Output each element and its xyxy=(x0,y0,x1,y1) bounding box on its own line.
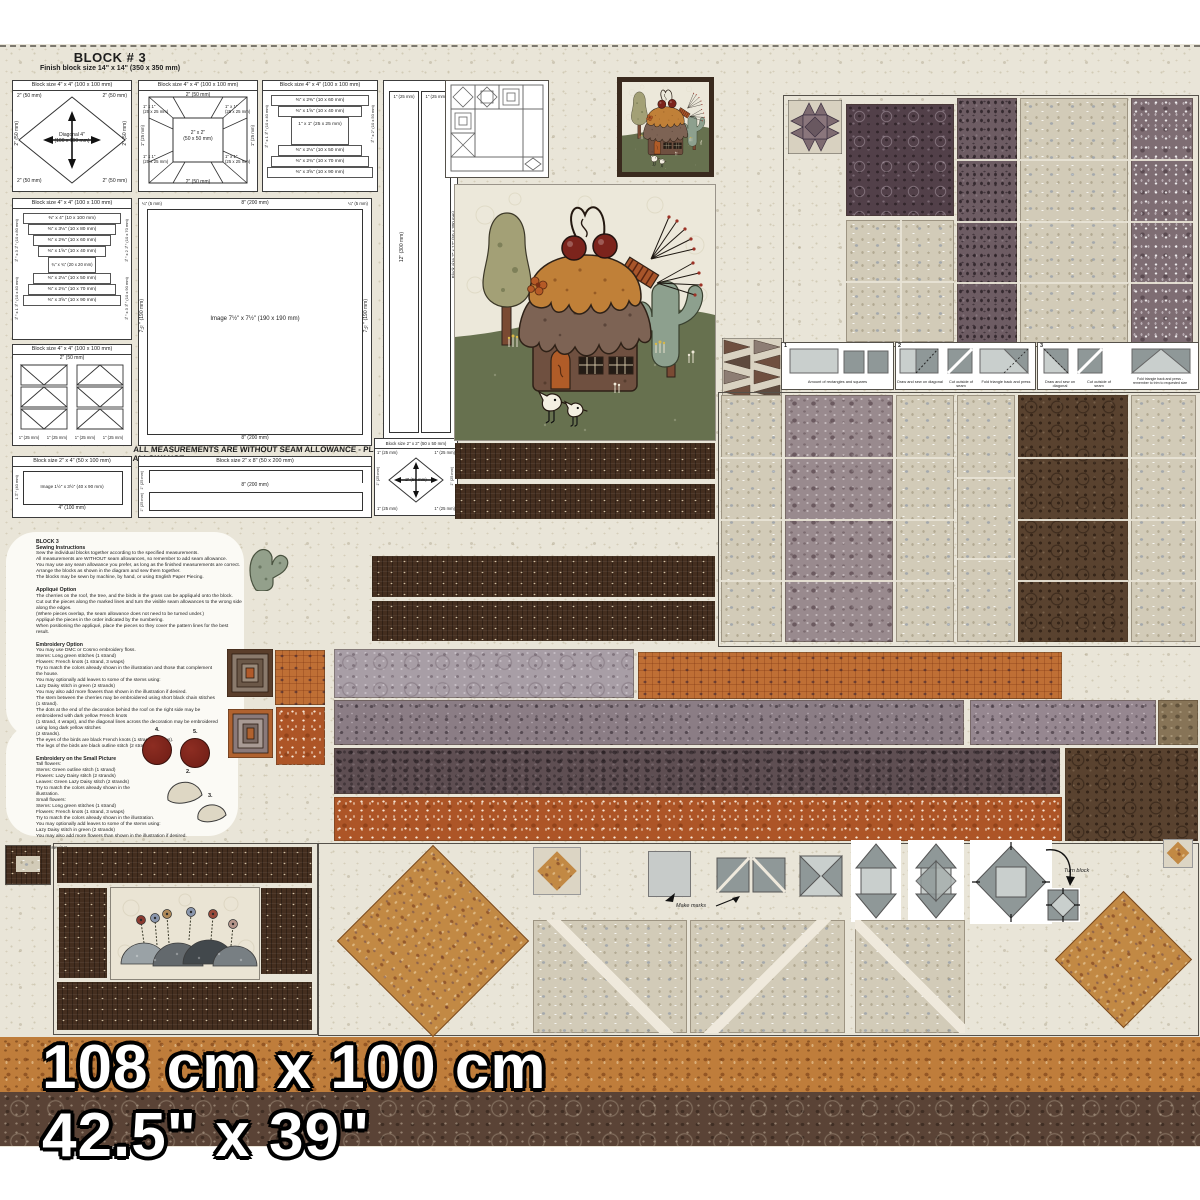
dim-label: 2" (50 mm) xyxy=(15,121,21,146)
fabric-square xyxy=(1065,748,1198,841)
fabric-divider xyxy=(1131,580,1196,582)
step-caption: Cut outside of seam xyxy=(1082,380,1116,389)
instruction-section: Appliqué Option The cherries on the roof… xyxy=(36,587,242,635)
fabric-strip xyxy=(334,797,1062,841)
diagonal-sashing xyxy=(690,920,845,1033)
frame-strip-right xyxy=(261,888,312,974)
bird-template-number: 2. xyxy=(186,769,191,775)
guide-square xyxy=(648,851,691,897)
fabric-column xyxy=(1131,395,1196,642)
dim-label: 4" (100 mm) xyxy=(13,506,131,512)
small-picture-flowers xyxy=(110,887,260,980)
fabric-divider xyxy=(957,282,1017,284)
fabric-column xyxy=(896,395,954,642)
fabric-column xyxy=(957,98,1017,343)
strip-label: ⅜" x 2⅜" (10 x 60 mm) xyxy=(33,235,111,246)
guide-triangle-pair xyxy=(715,856,787,896)
instruction-section: Embroidery Option You may use DMC or Cos… xyxy=(36,642,242,750)
flower-mounds-graphic xyxy=(111,888,259,979)
fabric-square xyxy=(846,104,954,216)
strip-label: ⅜" x 3⅝" (10 x 90 mm) xyxy=(267,167,373,178)
mark-arrow xyxy=(663,893,677,903)
strip-label: ⅜" x 1⅝" (10 x 40 mm) xyxy=(14,277,20,321)
dim-label: 1" x 1" (25 x 25 mm) xyxy=(143,155,173,165)
bird-body-template xyxy=(196,799,228,825)
fabric-divider xyxy=(1018,519,1128,521)
dim-label: ¼" (5 mm) xyxy=(348,201,368,207)
dim-label: 1" (25 mm) xyxy=(377,506,398,512)
fabric-column xyxy=(957,395,1015,642)
dim-label: 1" x 1" (25 x 25 mm) xyxy=(225,105,255,115)
house-picture-preview xyxy=(617,77,714,177)
diagram-center-image: ¼" (5 mm) 8" (200 mm) ¼" (5 mm) 7½" (190… xyxy=(138,198,372,446)
fabric-divider xyxy=(1020,221,1128,223)
strip-label: ⅜" x 3⅛" (10 x 80 mm) xyxy=(28,224,116,235)
image-size-label: Image 1½" x 3½" (40 x 90 mm) xyxy=(25,484,119,490)
step-number: 1 xyxy=(784,343,787,349)
diagonal-sashing xyxy=(855,920,965,1033)
fabric-divider xyxy=(896,457,954,459)
dim-label: 2" (50 mm) xyxy=(13,356,131,362)
log-cabin-mini-block xyxy=(228,709,273,758)
diagram-logcabin-block: Block size 4" x 4" (100 x 100 mm) ⅜" x 4… xyxy=(12,198,132,340)
fabric-square xyxy=(1158,700,1198,745)
fabric-column xyxy=(1018,395,1128,642)
dim-label: 1" (25 mm) xyxy=(15,435,43,441)
panel-subtitle: Finish block size 14" x 14" (350 x 350 m… xyxy=(0,65,220,72)
step1-graphic xyxy=(782,343,893,377)
geese-guide-step3: 3 Draw and sew on diagonal Cut outside o… xyxy=(1037,342,1199,390)
strip-label: ¾" x ¾" (20 x 20 mm) xyxy=(48,257,96,273)
diagram-header: Block size 2" x 8" (50 x 200 mm) xyxy=(139,457,371,467)
panel-size-inches: 42.5" x 39" xyxy=(42,1100,370,1171)
frame-strip-left xyxy=(59,888,107,978)
house-picture-main xyxy=(455,185,715,440)
fabric-panel-product-image: BLOCK # 3 Finish block size 14" x 14" (3… xyxy=(0,0,1200,1200)
flying-geese-graphic xyxy=(13,363,131,431)
fabric-divider xyxy=(721,457,782,459)
diagram-block-2x4: Block size 2" x 4" (50 x 100 mm) Image 1… xyxy=(12,456,132,518)
diagram-header: Block size 4" x 4" (100 x 100 mm) xyxy=(263,81,377,91)
cherry-template xyxy=(180,738,210,768)
fabric-divider xyxy=(785,519,893,521)
house-main-graphic xyxy=(455,185,715,440)
border-strip xyxy=(455,484,715,519)
step-number: 3 xyxy=(1040,343,1043,349)
strip-label: 1" x 1" (25 x 25 mm) xyxy=(291,117,349,145)
fabric-strip xyxy=(334,700,964,745)
fabric-divider xyxy=(1131,457,1196,459)
dim-label: 1" (25 mm) xyxy=(140,493,146,512)
dim-label: 1" x 1" (25 x 25 mm) xyxy=(143,105,173,115)
dim-label: 1" (25 mm) xyxy=(140,471,146,490)
diagram-hourglass-block: Block size 4" x 4" (100 x 100 mm) 2" (50… xyxy=(138,80,258,192)
fabric-strip xyxy=(334,748,1060,794)
diagonal-label: Diagonal 4" (100 x 100 mm) xyxy=(41,133,103,145)
cactus-applique xyxy=(238,533,300,591)
dim-label: 1" (25 mm) xyxy=(377,450,398,456)
step2-graphic xyxy=(896,343,1035,377)
dim-label: 1" (25 mm) xyxy=(43,435,71,441)
diamond-inner xyxy=(1167,842,1190,865)
square-in-square-step2 xyxy=(908,840,964,922)
fabric-divider xyxy=(957,558,1015,560)
dim-label: 2" (50 mm) xyxy=(390,477,442,483)
diamond-block-sample xyxy=(533,847,581,895)
fabric-column xyxy=(1131,98,1193,343)
diagram-block-2x8: Block size 2" x 8" (50 x 200 mm) 8" (200… xyxy=(138,456,372,518)
dim-label: 8" (200 mm) xyxy=(139,201,371,207)
fabric-square xyxy=(276,707,325,765)
dim-label: 2" (50 mm) xyxy=(17,94,42,100)
diagram-flying-geese-block: Block size 4" x 4" (100 x 100 mm) 2" (50… xyxy=(12,344,132,446)
dim-label: 12" (300 mm) xyxy=(400,232,406,262)
instruction-body: Sew the individual blocks together accor… xyxy=(36,551,242,581)
turn-block-label: Turn block xyxy=(1064,868,1108,874)
sashed-fabric-piece xyxy=(533,920,845,1033)
diagram-block-2x2: Block size 2" x 2" (50 x 50 mm) 1" (25 m… xyxy=(374,438,458,516)
dim-label: 2" x 2" (50 x 50 mm) xyxy=(169,131,227,143)
fabric-divider xyxy=(1020,282,1128,284)
dim-label: 1" (25 mm) xyxy=(434,506,455,512)
star-quilt-block xyxy=(788,100,842,154)
step-caption: Cut outside of seam xyxy=(944,380,978,389)
instruction-body: You may use DMC or Cosmo embroidery flos… xyxy=(36,648,242,750)
cherry-template xyxy=(142,735,172,765)
diamond-block-sample-small xyxy=(1163,839,1193,868)
fabric-divider xyxy=(1020,159,1128,161)
cherry-template-number: 5. xyxy=(193,729,198,735)
dim-label: 2" (50 mm) xyxy=(102,94,127,100)
frame-strip-top xyxy=(57,847,312,883)
dim-label: 1" x 1" (25 x 25 mm) xyxy=(225,155,255,165)
mini-framed-piece xyxy=(5,845,51,885)
strip-label: ⅜" x 2⅛" (10 x 50 mm) xyxy=(278,145,362,156)
step3-graphic xyxy=(1038,343,1198,377)
fabric-divider xyxy=(721,580,782,582)
diagram-header: Block size 4" x 4" (100 x 100 mm) xyxy=(13,345,131,355)
geese-guide-step2: 2 Draw and sew on diagonal Cut outside o… xyxy=(895,342,1036,390)
diagram-header: Block size 2" x 4" (50 x 100 mm) xyxy=(13,457,131,467)
strip-label: ⅜" x 4" (10 x 100 mm) xyxy=(23,213,121,224)
instruction-heading: BLOCK 3 Sewing Instructions xyxy=(36,539,242,551)
cherry-template-number: 4. xyxy=(155,727,160,733)
fabric-divider xyxy=(900,220,902,342)
strip-label: ⅜" x 2⅛" (10 x 50 mm) xyxy=(33,273,111,284)
fabric-divider xyxy=(957,159,1017,161)
fabric-strip xyxy=(970,700,1156,745)
step-caption: Draw and sew on diagonal xyxy=(1038,380,1082,389)
house-preview-graphic xyxy=(622,82,709,172)
strip-label: ⅜" x 2¾" (10 x 70 mm) xyxy=(271,156,369,167)
fabric-divider xyxy=(1131,159,1193,161)
dim-label: 7½" (190 mm) xyxy=(364,299,370,332)
dim-label: 1" (25 mm) xyxy=(390,94,418,100)
fabric-divider xyxy=(896,580,954,582)
fabric-divider xyxy=(785,457,893,459)
turn-arrow xyxy=(1042,846,1076,888)
strip-label: ⅜" x 3⅝" (10 x 90 mm) xyxy=(23,295,121,306)
step-caption: Fold triangle back and press - remember … xyxy=(1124,377,1196,385)
border-strip xyxy=(372,556,715,597)
dim-label: 1" (25 mm) xyxy=(140,125,146,146)
dim-label: 7½" (190 mm) xyxy=(140,299,146,332)
square-in-square-step1 xyxy=(851,840,901,922)
dim-label: 8" (200 mm) xyxy=(139,483,371,489)
step-number: 2 xyxy=(898,343,901,349)
fabric-divider xyxy=(896,519,954,521)
panel-title: BLOCK # 3 xyxy=(20,50,200,65)
strip-outline xyxy=(149,492,363,511)
border-strip xyxy=(455,443,715,479)
step-caption: Amount of rectangles and squares xyxy=(782,380,893,384)
fabric-divider xyxy=(957,477,1015,479)
sashed-square xyxy=(533,920,687,1033)
diagram-header: Block size 4" x 4" (100 x 100 mm) xyxy=(139,81,257,91)
strip-label: ⅜" x 2" (10 x 50 mm) xyxy=(370,105,376,144)
dim-label: 1" (25 mm) xyxy=(250,125,256,146)
diagram-header: Block size 2" x 2" (50 x 50 mm) xyxy=(375,439,457,449)
strip-label: ⅜" x 2¾" (10 x 70 mm) xyxy=(124,219,130,263)
diagram-diamond-block: Block size 4" x 4" (100 x 100 mm) 2" (50… xyxy=(12,80,132,192)
dim-label: 1" (25 mm) xyxy=(99,435,127,441)
strip-label: ⅜" x 2⅜" (10 x 60 mm) xyxy=(271,95,369,106)
turned-block-result xyxy=(1046,888,1080,922)
strip-label: ⅜" x 1⅝" (10 x 40 mm) xyxy=(38,246,106,257)
dim-label: 2" (50 mm) xyxy=(151,93,245,99)
strip-label: ⅜" x 1⅝" (10 x 40 mm) xyxy=(264,105,270,149)
strip-label: ⅜" x 3⅝" (10 x 90 mm) xyxy=(124,277,130,321)
dim-label: 1" (25 mm) xyxy=(71,435,99,441)
quilt-layout-diagram xyxy=(445,80,549,178)
flying-geese-sample-block xyxy=(722,338,782,400)
instruction-section: BLOCK 3 Sewing Instructions Sew the indi… xyxy=(36,539,242,581)
instruction-body: The cherries on the roof, the tree, and … xyxy=(36,594,242,636)
dim-label: 1" (25 mm) xyxy=(434,450,455,456)
fabric-divider xyxy=(721,519,782,521)
fabric-column xyxy=(721,395,782,642)
diagonal-sashing xyxy=(533,920,687,1033)
diagram-logcabin-corner-block: Block size 4" x 4" (100 x 100 mm) ⅜" x 2… xyxy=(262,80,378,192)
make-marks-arrow xyxy=(714,894,742,908)
dim-label: 1½" (40 mm) xyxy=(14,475,20,500)
fabric-divider xyxy=(1018,457,1128,459)
sashed-fabric-piece xyxy=(855,920,965,1033)
fabric-column xyxy=(785,395,893,642)
image-size-label: Image 7½" x 7½" (190 x 190 mm) xyxy=(181,317,329,323)
top-stitch-edge xyxy=(0,45,1200,47)
dim-label: 2" (50 mm) xyxy=(151,180,245,186)
fabric-column xyxy=(1020,98,1128,343)
diamond-inner xyxy=(537,851,577,891)
fabric-strip xyxy=(638,652,1062,699)
border-strip xyxy=(372,601,715,641)
sashed-square xyxy=(690,920,845,1033)
strip-label: ⅜" x 1⅝" (10 x 40 mm) xyxy=(278,106,362,117)
mini-framed-center xyxy=(16,856,40,872)
fabric-divider xyxy=(957,221,1017,223)
strip-label: ⅜" x 3⅛" (10 x 80 mm) xyxy=(14,219,20,263)
guide-bowtie xyxy=(798,854,844,898)
fabric-divider xyxy=(1131,221,1193,223)
fabric-divider xyxy=(1018,580,1128,582)
step-caption: Fold triangle back and press xyxy=(980,380,1032,384)
strip-left: 1" (25 mm) 12" (300 mm) xyxy=(389,91,419,433)
diagram-header: Block size 4" x 4" (100 x 100 mm) xyxy=(13,81,131,91)
fabric-strip xyxy=(334,649,634,698)
frame-strip-bottom xyxy=(57,982,312,1030)
fabric-divider xyxy=(785,580,893,582)
log-cabin-mini-block xyxy=(227,649,273,697)
dim-label: 1" (25 mm) xyxy=(376,467,382,486)
fabric-square xyxy=(275,650,325,705)
dim-label: 2" (50 mm) xyxy=(123,121,129,146)
fabric-square-grid xyxy=(846,220,954,342)
fabric-divider xyxy=(1131,282,1193,284)
dim-label: 8" (200 mm) xyxy=(139,436,371,442)
diagram-header: Block size 4" x 4" (100 x 100 mm) xyxy=(13,199,131,209)
geese-guide-step1: 1 Amount of rectangles and squares xyxy=(781,342,894,390)
step-caption: Draw and sew on diagonal xyxy=(896,380,944,384)
dim-label: 2" (50 mm) xyxy=(102,179,127,185)
fabric-divider xyxy=(1131,519,1196,521)
panel-size-cm: 108 cm x 100 cm xyxy=(42,1032,547,1103)
dim-label: 2" (50 mm) xyxy=(17,179,42,185)
strip-label: ⅜" x 2¾" (10 x 70 mm) xyxy=(28,284,116,295)
quilt-layout-graphic xyxy=(446,81,548,177)
square-in-square-step3 xyxy=(970,840,1052,924)
